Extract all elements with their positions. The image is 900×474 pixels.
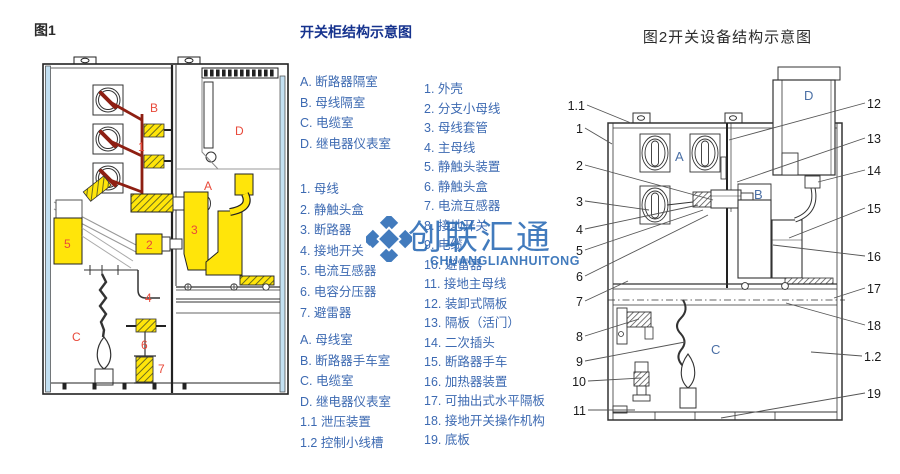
fig1-label-4: 4	[145, 291, 152, 305]
legend-item: 5. 电流互感器	[300, 261, 428, 282]
legend-item: 13. 隔板（活门）	[424, 314, 564, 334]
fig1-label-A: A	[204, 179, 212, 193]
legend-item: 8. 接地开关	[424, 217, 564, 237]
legend-item: A. 母线室	[300, 330, 428, 351]
legend-item: 10. 避雷器	[424, 256, 564, 276]
legend-item: 5. 静触头装置	[424, 158, 564, 178]
callout-label: 15	[867, 202, 881, 216]
legend-item: 1.2 控制小线槽	[300, 433, 428, 454]
fig1-label-3: 3	[191, 223, 198, 237]
legend-item: A. 断路器隔室	[300, 72, 428, 93]
fig1-label-6: 6	[141, 338, 148, 352]
legend-item: B. 母线隔室	[300, 93, 428, 114]
legend-item: C. 电缆室	[300, 371, 428, 392]
fig1-diagram: B 1 D A 2 3 5 4 6 7 C	[38, 56, 296, 401]
legend-item: 4. 接地开关	[300, 241, 428, 262]
fig1-label-B: B	[150, 101, 158, 115]
legend-item: 1. 母线	[300, 179, 428, 200]
legend-item: 6. 静触头盒	[424, 178, 564, 198]
fig1-label-7: 7	[158, 362, 165, 376]
legend-item: 17. 可抽出式水平隔板	[424, 392, 564, 412]
fig1-left-panel-strip	[46, 66, 51, 392]
legend-item: 4. 主母线	[424, 139, 564, 159]
callout-label: 4	[576, 223, 583, 237]
legend-item: 2. 分支小母线	[424, 100, 564, 120]
fig2-letter-B: B	[754, 187, 763, 202]
callout-label: 19	[867, 387, 881, 401]
fig1-label-D: D	[235, 124, 244, 138]
fig1-caption: 图1	[34, 20, 56, 40]
legend-item: D. 继电器仪表室	[300, 134, 428, 155]
fig1-label-5: 5	[64, 237, 71, 251]
callout-label: 2	[576, 159, 583, 173]
fig1-label-C: C	[72, 330, 81, 344]
callout-label: 6	[576, 270, 583, 284]
fig2-arrester	[633, 362, 650, 401]
fig1-label-2: 2	[146, 238, 153, 252]
fig2-letter-A: A	[675, 149, 684, 164]
legend-item: 11. 接地主母线	[424, 275, 564, 295]
callout-label: 14	[867, 164, 881, 178]
legend-item: 15. 断路器手车	[424, 353, 564, 373]
legend1-title: 开关柜结构示意图	[300, 22, 428, 42]
callout-label: 18	[867, 319, 881, 333]
callout-label: 3	[576, 195, 583, 209]
fig1-lifting-lugs	[74, 57, 200, 64]
fig2-letter-D: D	[804, 88, 813, 103]
legend-item: 19. 底板	[424, 431, 564, 451]
legend-item: 14. 二次插头	[424, 334, 564, 354]
fig2-diagram: A B C D 1.1 1 2 3 4 5 6 7 8 9 10 11 12 1…	[555, 62, 900, 474]
callout-label: 8	[576, 330, 583, 344]
legend-item: 18. 接地开关操作机构	[424, 412, 564, 432]
fig1-right-panel-strip	[280, 76, 285, 392]
callout-label: 13	[867, 132, 881, 146]
callout-label: 17	[867, 282, 881, 296]
legend-item: 3. 母线套管	[424, 119, 564, 139]
legend-item: 1.1 泄压装置	[300, 412, 428, 433]
legend-item: C. 电缆室	[300, 113, 428, 134]
legend-item: 9. 电缆	[424, 236, 564, 256]
fig1-busbar-bushings	[93, 85, 123, 193]
legend-switch-cabinet: 开关柜结构示意图 A. 断路器隔室 B. 母线隔室 C. 电缆室 D. 继电器仪…	[300, 22, 428, 42]
fig2-title: 图2开关设备结构示意图	[555, 26, 900, 47]
legend-item: 3. 断路器	[300, 220, 428, 241]
fig2-letter-C: C	[711, 342, 720, 357]
legend-item: 16. 加热器装置	[424, 373, 564, 393]
legend-item: D. 继电器仪表室	[300, 392, 428, 413]
legend-item: 7. 避雷器	[300, 303, 428, 324]
callout-label: 12	[867, 97, 881, 111]
fig2-relay-box	[773, 67, 840, 175]
callout-label: 9	[576, 355, 583, 369]
callout-label: 11	[573, 404, 586, 418]
callout-label: 1.2	[864, 350, 881, 364]
legend-item: 1. 外壳	[424, 80, 564, 100]
callout-label: 1.1	[568, 99, 585, 113]
fig2-callouts-left: 1.1 1 2 3 4 5 6 7 8 9 10 11	[568, 99, 586, 418]
fig1-heater-strip	[240, 276, 274, 285]
legend-item: 2. 静触头盒	[300, 200, 428, 221]
fig1-label-1: 1	[138, 140, 145, 154]
legend-item: 7. 电流互感器	[424, 197, 564, 217]
callout-label: 5	[576, 244, 583, 258]
fig1-part-7	[134, 356, 156, 383]
fig2-callouts-right: 12 13 14 15 16 17 18 1.2 19	[864, 97, 881, 401]
legend-item: 12. 装卸式隔板	[424, 295, 564, 315]
callout-label: 10	[572, 375, 586, 389]
fig2-lifting-lugs	[633, 113, 742, 123]
legend-item: B. 断路器手车室	[300, 351, 428, 372]
callout-label: 7	[576, 295, 583, 309]
legend-item: 6. 电容分压器	[300, 282, 428, 303]
legend-switch-equipment: 1. 外壳 2. 分支小母线 3. 母线套管 4. 主母线 5. 静触头装置 6…	[424, 80, 564, 451]
callout-label: 16	[867, 250, 881, 264]
callout-label: 1	[576, 122, 583, 136]
screenshot-canvas: 图1	[0, 0, 900, 474]
